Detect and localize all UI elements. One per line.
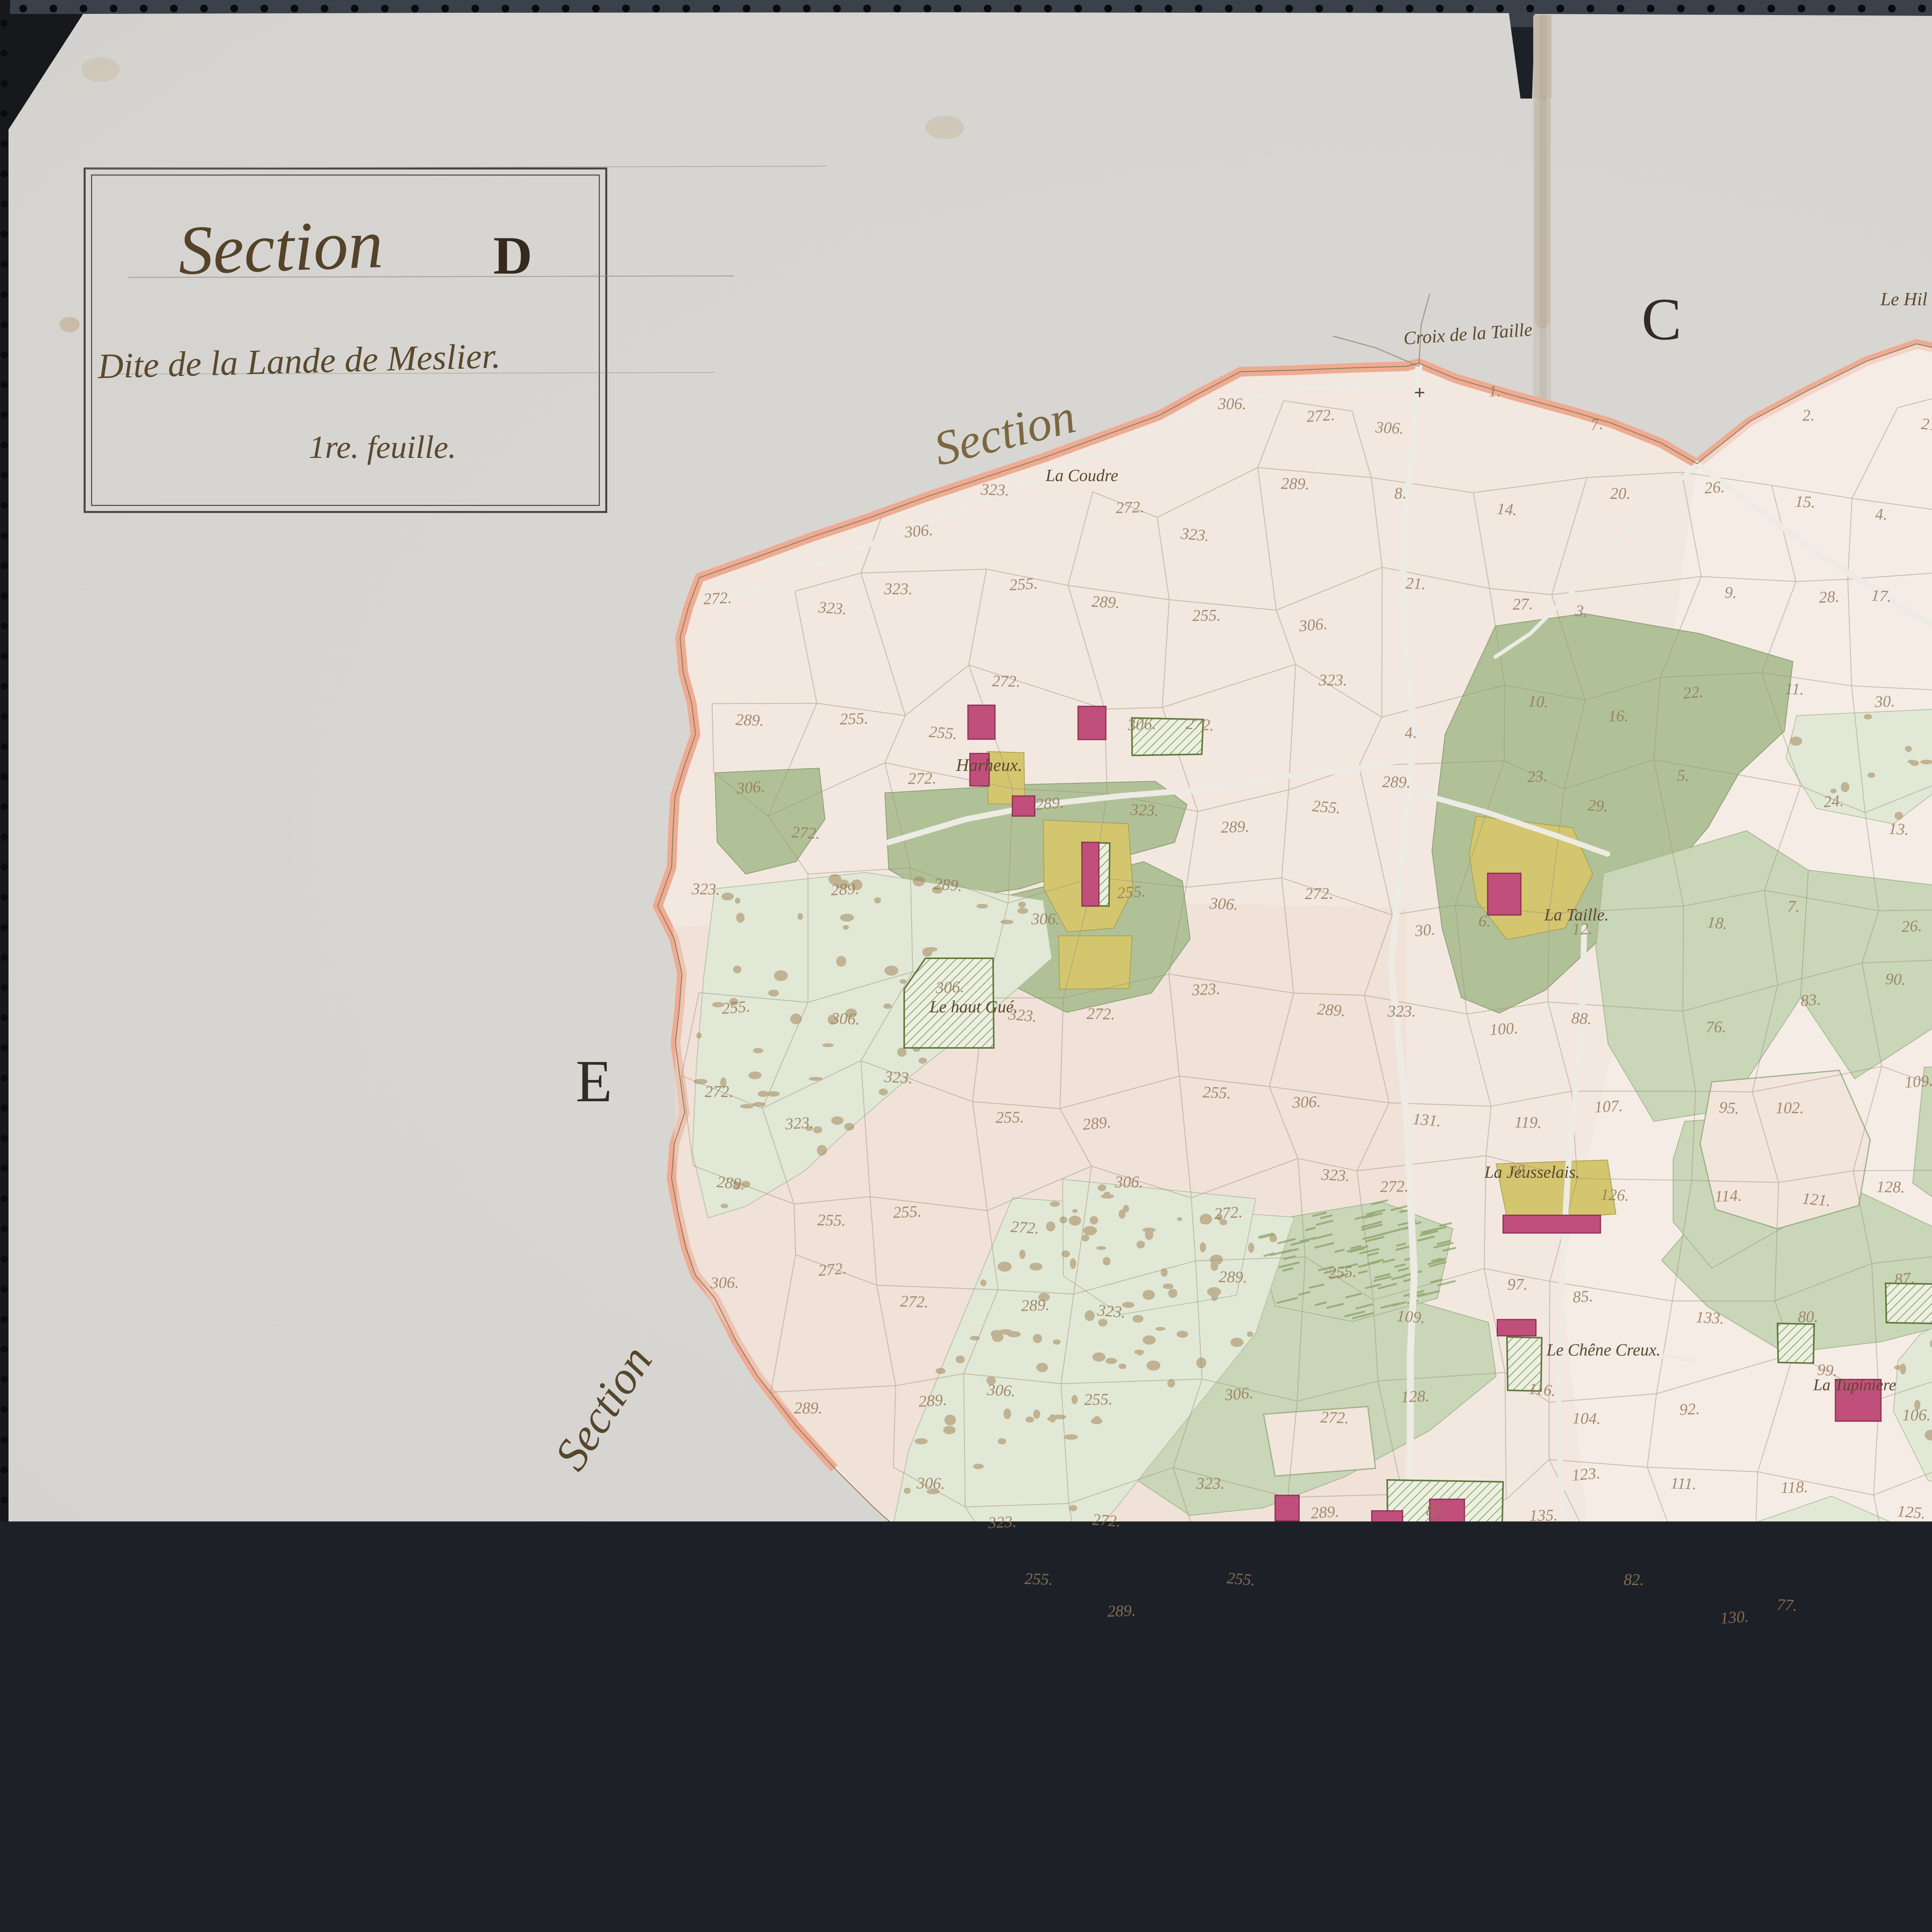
svg-text:100.: 100. <box>1489 1019 1519 1039</box>
svg-text:306.: 306. <box>916 1475 945 1493</box>
svg-text:2.: 2. <box>1802 406 1815 425</box>
svg-text:255.: 255. <box>928 723 958 743</box>
svg-text:289.: 289. <box>1107 1602 1136 1621</box>
svg-text:22.: 22. <box>1682 683 1704 702</box>
svg-text:11.: 11. <box>1785 680 1804 699</box>
svg-text:323.: 323. <box>1180 525 1210 545</box>
svg-text:E: E <box>576 1048 612 1114</box>
svg-text:272.: 272. <box>908 770 936 788</box>
svg-text:10.: 10. <box>1527 692 1549 711</box>
svg-text:323.: 323. <box>1196 1475 1225 1493</box>
svg-text:289.: 289. <box>1021 1296 1050 1315</box>
svg-text:289.: 289. <box>1316 1000 1346 1020</box>
svg-text:116.: 116. <box>1528 1380 1556 1400</box>
svg-text:323.: 323. <box>980 481 1010 500</box>
svg-text:255.: 255. <box>1311 797 1341 817</box>
svg-text:289.: 289. <box>1281 475 1310 493</box>
svg-text:102.: 102. <box>1776 1099 1804 1117</box>
svg-text:255.: 255. <box>1226 1569 1256 1589</box>
svg-text:21.: 21. <box>1405 575 1426 593</box>
svg-text:14.: 14. <box>1496 500 1518 519</box>
svg-text:107.: 107. <box>1594 1097 1623 1116</box>
svg-text:8.: 8. <box>1394 484 1407 503</box>
svg-text:255.: 255. <box>721 998 751 1018</box>
svg-text:114.: 114. <box>1714 1187 1742 1206</box>
svg-text:289.: 289. <box>933 875 963 895</box>
svg-text:La Coudre: La Coudre <box>1045 466 1118 485</box>
svg-text:78.: 78. <box>1508 1162 1530 1181</box>
svg-text:272.: 272. <box>1092 1511 1121 1531</box>
svg-text:272.: 272. <box>1320 1408 1349 1427</box>
svg-text:135.: 135. <box>1529 1507 1558 1525</box>
svg-text:272.: 272. <box>818 1260 847 1280</box>
svg-text:83.: 83. <box>1800 991 1821 1010</box>
svg-text:88.: 88. <box>1571 1009 1592 1028</box>
svg-text:255.: 255. <box>817 1211 846 1230</box>
svg-text:323.: 323. <box>1320 1166 1350 1185</box>
svg-text:109.: 109. <box>1396 1307 1426 1327</box>
svg-text:121.: 121. <box>1801 1190 1831 1210</box>
svg-text:306.: 306. <box>1209 895 1238 914</box>
svg-text:1re. feuille.: 1re. feuille. <box>309 429 456 465</box>
svg-text:255.: 255. <box>1024 1570 1053 1589</box>
svg-text:289.: 289. <box>1035 794 1065 814</box>
svg-text:16.: 16. <box>1608 707 1628 725</box>
svg-text:15.: 15. <box>1794 493 1816 512</box>
svg-text:272.: 272. <box>992 672 1020 690</box>
svg-text:82.: 82. <box>1624 1571 1644 1589</box>
svg-text:3.: 3. <box>1574 602 1588 621</box>
svg-text:323.: 323. <box>1007 1005 1037 1026</box>
svg-text:289.: 289. <box>735 711 764 730</box>
svg-text:323.: 323. <box>1191 980 1221 999</box>
svg-text:323.: 323. <box>883 1068 913 1087</box>
svg-text:306.: 306. <box>1292 1093 1321 1112</box>
svg-text:306.: 306. <box>1218 395 1247 413</box>
svg-text:87.: 87. <box>1894 1269 1915 1289</box>
svg-text:255.: 255. <box>1202 1083 1231 1102</box>
svg-text:289.: 289. <box>918 1391 947 1411</box>
svg-text:306.: 306. <box>1127 715 1156 734</box>
svg-text:272.: 272. <box>1185 715 1215 735</box>
svg-text:306.: 306. <box>735 778 765 798</box>
svg-text:272.: 272. <box>1306 406 1335 426</box>
svg-text:26.: 26. <box>1704 478 1725 497</box>
svg-text:30.: 30. <box>1414 921 1436 940</box>
svg-text:272.: 272. <box>703 589 732 608</box>
svg-text:323.: 323. <box>817 599 847 618</box>
svg-text:111.: 111. <box>1670 1475 1697 1493</box>
svg-text:272.: 272. <box>705 1083 733 1101</box>
svg-text:306.: 306. <box>710 1274 739 1292</box>
svg-text:La Jeusselais.: La Jeusselais. <box>1484 1163 1580 1182</box>
svg-text:306.: 306. <box>1031 910 1060 928</box>
svg-text:131.: 131. <box>1412 1110 1442 1130</box>
svg-text:97.: 97. <box>1507 1276 1528 1294</box>
svg-text:289.: 289. <box>1091 593 1120 612</box>
svg-text:92.: 92. <box>1679 1400 1700 1419</box>
svg-text:323.: 323. <box>1387 1003 1416 1020</box>
svg-text:18.: 18. <box>1706 913 1728 933</box>
svg-text:255.: 255. <box>1009 575 1038 594</box>
svg-text:306.: 306. <box>935 978 964 997</box>
svg-text:23.: 23. <box>1527 767 1548 786</box>
svg-text:255.: 255. <box>1328 1263 1357 1282</box>
svg-text:1.: 1. <box>1488 382 1501 400</box>
svg-text:26.: 26. <box>1901 917 1922 936</box>
svg-text:104.: 104. <box>1572 1410 1601 1428</box>
svg-text:21.: 21. <box>1920 415 1932 434</box>
svg-text:80.: 80. <box>1798 1308 1818 1326</box>
svg-text:109.: 109. <box>1904 1072 1932 1092</box>
svg-text:118.: 118. <box>1781 1478 1808 1497</box>
svg-text:255.: 255. <box>1084 1391 1112 1409</box>
svg-text:272.: 272. <box>1304 885 1333 903</box>
svg-text:306.: 306. <box>1224 1384 1254 1404</box>
svg-text:306.: 306. <box>903 521 934 541</box>
svg-text:306.: 306. <box>986 1381 1016 1400</box>
svg-text:255.: 255. <box>1192 607 1221 625</box>
svg-text:272.: 272. <box>1116 498 1145 517</box>
svg-text:289.: 289. <box>830 880 860 899</box>
svg-text:323.: 323. <box>691 880 720 898</box>
svg-text:76.: 76. <box>1706 1018 1726 1036</box>
svg-text:90.: 90. <box>1885 970 1906 989</box>
svg-text:125.: 125. <box>1896 1502 1926 1522</box>
svg-text:7.: 7. <box>1590 415 1604 434</box>
svg-text:255.: 255. <box>893 1202 922 1222</box>
svg-text:28.: 28. <box>1818 588 1840 607</box>
svg-text:255.: 255. <box>1116 883 1146 902</box>
svg-text:272.: 272. <box>791 823 820 843</box>
svg-text:119.: 119. <box>1514 1114 1542 1132</box>
svg-text:Le Chêne Creux.: Le Chêne Creux. <box>1546 1340 1660 1359</box>
svg-text:123.: 123. <box>1571 1464 1601 1485</box>
svg-text:77.: 77. <box>1776 1596 1798 1615</box>
svg-text:323.: 323. <box>1130 801 1159 820</box>
svg-text:Section: Section <box>177 205 384 289</box>
svg-text:323.: 323. <box>1096 1301 1126 1321</box>
svg-text:323.: 323. <box>884 580 913 598</box>
svg-text:C: C <box>1641 286 1681 352</box>
svg-text:289.: 289. <box>1082 1114 1112 1134</box>
svg-text:4.: 4. <box>1875 505 1887 524</box>
svg-text:272.: 272. <box>1087 1005 1115 1023</box>
svg-text:6.: 6. <box>1478 912 1491 930</box>
svg-text:323.: 323. <box>987 1513 1017 1532</box>
svg-text:128.: 128. <box>1401 1387 1430 1406</box>
svg-text:289.: 289. <box>1219 1268 1247 1286</box>
svg-text:289.: 289. <box>1221 818 1250 837</box>
svg-text:D: D <box>493 226 532 286</box>
svg-text:95.: 95. <box>1718 1099 1740 1118</box>
svg-text:133.: 133. <box>1695 1308 1725 1328</box>
svg-text:24.: 24. <box>1823 792 1844 811</box>
svg-text:87.: 87. <box>1425 1502 1447 1520</box>
svg-text:27.: 27. <box>1512 595 1533 614</box>
svg-text:4.: 4. <box>1404 724 1417 742</box>
svg-text:126.: 126. <box>1600 1186 1629 1205</box>
svg-text:13.: 13. <box>1888 820 1909 839</box>
svg-text:289.: 289. <box>1382 773 1411 791</box>
svg-text:289.: 289. <box>794 1400 823 1417</box>
svg-text:20.: 20. <box>1610 485 1631 503</box>
svg-text:255.: 255. <box>995 1109 1024 1127</box>
svg-text:323.: 323. <box>784 1114 814 1133</box>
svg-text:128.: 128. <box>1876 1178 1905 1196</box>
svg-text:306.: 306. <box>1114 1173 1143 1191</box>
svg-text:306.: 306. <box>1374 418 1404 438</box>
svg-text:Harheux.: Harheux. <box>956 755 1022 775</box>
svg-text:323.: 323. <box>1318 672 1347 689</box>
svg-text:5.: 5. <box>1677 767 1689 785</box>
svg-text:99.: 99. <box>1816 1361 1838 1380</box>
svg-text:306.: 306. <box>1298 615 1328 635</box>
svg-text:9.: 9. <box>1725 584 1737 602</box>
svg-text:30.: 30. <box>1874 692 1895 711</box>
svg-text:289.: 289. <box>1310 1503 1340 1522</box>
svg-text:Le Hil Barras: Le Hil Barras <box>1880 289 1932 310</box>
svg-text:272.: 272. <box>900 1293 929 1311</box>
svg-text:272.: 272. <box>1380 1178 1408 1196</box>
svg-text:289.: 289. <box>716 1173 746 1193</box>
svg-text:Chanteloup.: Chanteloup. <box>1367 1531 1450 1550</box>
svg-text:7.: 7. <box>1787 898 1800 916</box>
svg-text:29.: 29. <box>1587 796 1609 816</box>
svg-text:272.: 272. <box>1213 1203 1243 1223</box>
svg-text:12.: 12. <box>1572 920 1593 939</box>
svg-text:306.: 306. <box>831 1010 860 1029</box>
svg-text:85.: 85. <box>1572 1287 1594 1306</box>
svg-text:106.: 106. <box>1902 1406 1931 1424</box>
svg-text:255.: 255. <box>840 709 869 728</box>
svg-text:Le haut Gué.: Le haut Gué. <box>929 997 1018 1016</box>
svg-text:272.: 272. <box>1010 1218 1040 1238</box>
svg-text:17.: 17. <box>1871 587 1892 606</box>
svg-text:130.: 130. <box>1719 1608 1749 1628</box>
